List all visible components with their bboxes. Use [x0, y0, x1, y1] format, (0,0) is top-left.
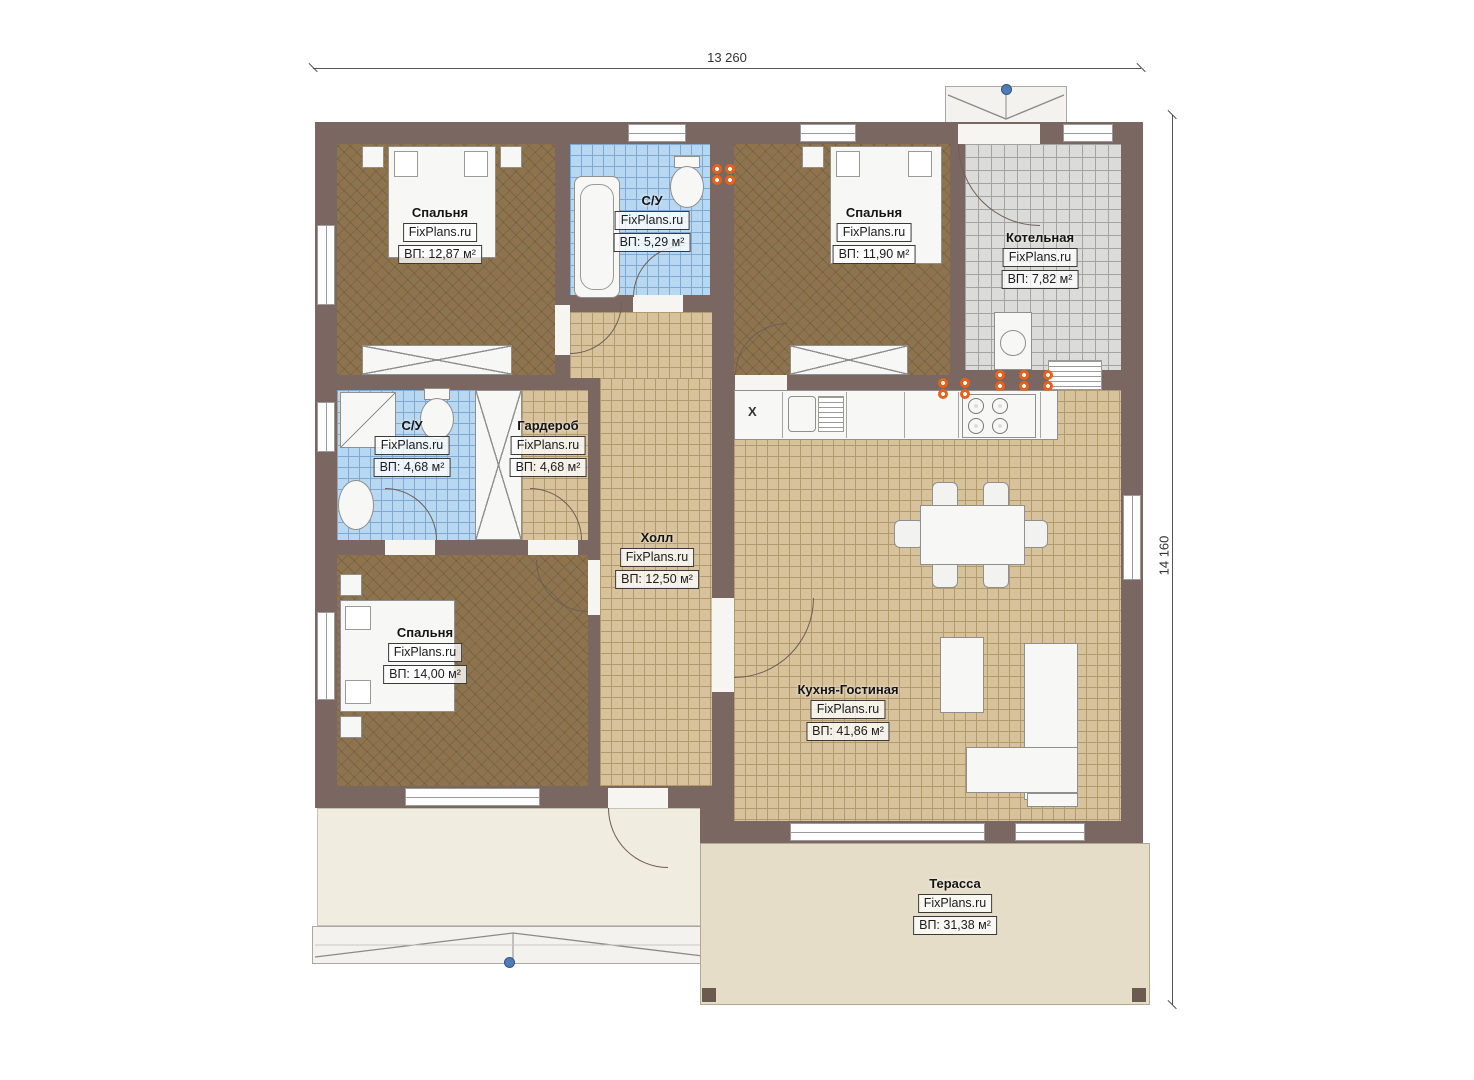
- closet: [790, 345, 908, 375]
- terrace-post: [1132, 988, 1146, 1002]
- window: [317, 612, 335, 700]
- window: [628, 124, 686, 142]
- room-label-bedroom-top-left: Спальня FixPlans.ru ВП: 12,87 м²: [398, 205, 482, 264]
- room-area: ВП: 5,29 м²: [614, 233, 691, 252]
- dining-table: [920, 505, 1025, 565]
- socket-icon: [712, 164, 722, 185]
- kitchen-corner-mark: X: [748, 404, 757, 419]
- pillow: [394, 151, 418, 177]
- room-area: ВП: 11,90 м²: [833, 245, 916, 264]
- room-name: Кухня-Гостиная: [797, 682, 898, 697]
- pillow: [345, 680, 371, 704]
- watermark: FixPlans.ru: [388, 643, 463, 662]
- room-area: ВП: 41,86 м²: [806, 722, 890, 741]
- room-label-bathroom-top: С/У FixPlans.ru ВП: 5,29 м²: [614, 193, 691, 252]
- room-name: Спальня: [846, 205, 902, 220]
- dimension-line-top: [313, 68, 1141, 69]
- watermark: FixPlans.ru: [375, 436, 450, 455]
- porch-door-opening: [608, 788, 668, 808]
- watermark: FixPlans.ru: [403, 223, 478, 242]
- pillow: [908, 151, 932, 177]
- sofa-section: [966, 747, 1078, 793]
- room-name: Холл: [641, 530, 674, 545]
- nightstand: [802, 146, 824, 168]
- window: [317, 225, 335, 305]
- coffee-table: [940, 637, 984, 713]
- room-label-bedroom-bottom: Спальня FixPlans.ru ВП: 14,00 м²: [383, 625, 467, 684]
- room-label-kitchen-living: Кухня-Гостиная FixPlans.ru ВП: 41,86 м²: [797, 682, 898, 741]
- bathtub-basin: [580, 184, 614, 290]
- window: [800, 124, 856, 142]
- stove-burner: [992, 398, 1008, 414]
- room-area: ВП: 31,38 м²: [913, 916, 997, 935]
- stove-burner: [968, 418, 984, 434]
- socket-icon: [938, 378, 948, 399]
- dimension-line-right: [1172, 115, 1173, 1005]
- room-area: ВП: 14,00 м²: [383, 665, 467, 684]
- room-area: ВП: 4,68 м²: [510, 458, 587, 477]
- door-opening: [555, 305, 570, 355]
- nightstand: [340, 716, 362, 738]
- door-opening: [633, 295, 683, 312]
- room-label-boiler: Котельная FixPlans.ru ВП: 7,82 м²: [1002, 230, 1079, 289]
- room-name: Гардероб: [517, 418, 578, 433]
- kitchen-sink-basin: [788, 396, 816, 432]
- socket-icon: [960, 378, 970, 399]
- room-label-terrace: Терасса FixPlans.ru ВП: 31,38 м²: [913, 876, 997, 935]
- nightstand: [500, 146, 522, 168]
- room-label-wardrobe: Гардероб FixPlans.ru ВП: 4,68 м²: [510, 418, 587, 477]
- socket-icon: [995, 370, 1005, 391]
- room-name: Спальня: [397, 625, 453, 640]
- window: [1015, 823, 1085, 841]
- canopy-marker: [504, 957, 515, 968]
- room-name: Спальня: [412, 205, 468, 220]
- boiler-unit-dial: [1000, 330, 1026, 356]
- room-area: ВП: 12,50 м²: [615, 570, 699, 589]
- pillow: [345, 606, 371, 630]
- room-name: С/У: [641, 193, 662, 208]
- watermark: FixPlans.ru: [620, 548, 695, 567]
- entrance-opening: [958, 124, 1040, 144]
- closet: [362, 345, 512, 375]
- room-name: Котельная: [1006, 230, 1074, 245]
- dimension-width-label: 13 260: [313, 50, 1141, 65]
- sink: [338, 480, 374, 530]
- room-area: ВП: 7,82 м²: [1002, 270, 1079, 289]
- watermark: FixPlans.ru: [1003, 248, 1078, 267]
- counter-divider: [904, 392, 905, 438]
- door-opening: [385, 540, 435, 555]
- window: [1063, 124, 1113, 142]
- sofa-armrest: [1027, 793, 1078, 807]
- socket-icon: [1019, 370, 1029, 391]
- socket-icon: [1043, 370, 1053, 391]
- counter-divider: [958, 392, 959, 438]
- door-opening: [735, 375, 787, 390]
- room-area: ВП: 12,87 м²: [398, 245, 482, 264]
- window: [405, 788, 540, 806]
- watermark: FixPlans.ru: [511, 436, 586, 455]
- counter-divider: [782, 392, 783, 438]
- dimension-height-label: 14 160: [1156, 536, 1171, 576]
- terrace-sliding-door: [790, 823, 985, 841]
- pillow: [464, 151, 488, 177]
- socket-icon: [725, 164, 735, 185]
- window: [1123, 495, 1141, 580]
- counter-divider: [1040, 392, 1041, 438]
- pillow: [836, 151, 860, 177]
- window: [317, 402, 335, 452]
- terrace-post: [702, 988, 716, 1002]
- boiler-kitchen-vent: [1048, 360, 1102, 390]
- door-opening: [528, 540, 578, 555]
- stove-burner: [968, 398, 984, 414]
- room-label-hall: Холл FixPlans.ru ВП: 12,50 м²: [615, 530, 699, 589]
- watermark: FixPlans.ru: [837, 223, 912, 242]
- stove-burner: [992, 418, 1008, 434]
- room-name: Терасса: [929, 876, 981, 891]
- door-opening: [588, 560, 600, 615]
- watermark: FixPlans.ru: [918, 894, 993, 913]
- counter-divider: [846, 392, 847, 438]
- nightstand: [362, 146, 384, 168]
- nightstand: [340, 574, 362, 596]
- room-label-bedroom-top-right: Спальня FixPlans.ru ВП: 11,90 м²: [833, 205, 916, 264]
- kitchen-drainer: [818, 396, 844, 432]
- floor-plan: 13 260 14 160: [0, 0, 1474, 1080]
- canopy-marker: [1001, 84, 1012, 95]
- room-area: ВП: 4,68 м²: [374, 458, 451, 477]
- room-name: С/У: [401, 418, 422, 433]
- hall-kitchen-opening: [712, 598, 734, 692]
- watermark: FixPlans.ru: [811, 700, 886, 719]
- room-label-bathroom-left: С/У FixPlans.ru ВП: 4,68 м²: [374, 418, 451, 477]
- watermark: FixPlans.ru: [615, 211, 690, 230]
